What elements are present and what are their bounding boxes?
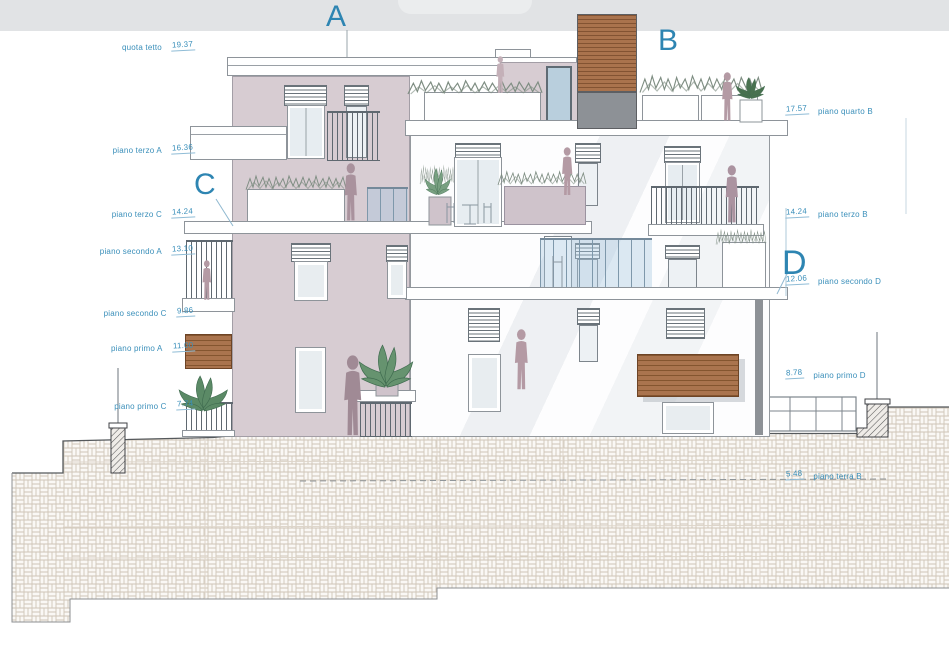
louver-window <box>577 308 600 325</box>
chimney-base <box>577 92 637 129</box>
window <box>388 262 406 298</box>
dim-label-quarto-b: 17.57 piano quarto B <box>785 107 873 118</box>
louver-window <box>284 85 327 106</box>
wood-slat-balcony-panel <box>637 354 739 397</box>
right-fence <box>767 397 856 431</box>
window <box>579 325 598 362</box>
dim-label-quota-tetto: quota tetto 19.37 <box>122 43 195 54</box>
dim-value: 16.36 <box>171 142 196 154</box>
louver-window <box>291 243 331 262</box>
louver-window <box>665 245 700 259</box>
window <box>668 259 697 290</box>
dim-name: piano primo D <box>813 371 865 380</box>
louver-window <box>344 85 369 106</box>
dim-name: piano secondo A <box>100 247 162 256</box>
window <box>288 106 324 158</box>
terrace-planter-right1 <box>642 95 699 122</box>
dim-label-secondo-c: piano secondo C 9.86 <box>104 309 195 320</box>
planter-slab-center <box>356 390 416 402</box>
section-letter-b: B <box>658 26 678 56</box>
dim-value: 7.74 <box>175 399 195 411</box>
balcony-base-left <box>182 430 235 437</box>
corner-pillar <box>755 300 763 435</box>
dim-value: 12.06 <box>785 273 810 285</box>
roof-parapet <box>495 49 531 58</box>
terrace-planter-c <box>247 189 345 222</box>
french-door <box>455 158 501 226</box>
dim-name: piano primo A <box>111 344 163 353</box>
dim-label-secondo-a: piano secondo A 13.10 <box>100 247 195 258</box>
planter-mauve <box>504 186 586 225</box>
bay-box-a <box>190 126 287 160</box>
dim-name: piano secondo D <box>818 277 881 286</box>
railing-center-low <box>360 402 412 437</box>
dim-name: piano terra B <box>813 472 861 481</box>
dim-label-primo-d: 8.78 piano primo D <box>785 371 866 382</box>
balcony-slab-b <box>648 224 764 236</box>
louver-window <box>666 308 705 339</box>
dim-value: 19.37 <box>171 39 196 51</box>
dim-name: piano secondo C <box>104 309 167 318</box>
dim-label-secondo-d: 12.06 piano secondo D <box>785 277 881 288</box>
dim-label-terzo-c: piano terzo C 14.24 <box>112 210 195 221</box>
terrace-planter-left <box>424 92 541 122</box>
right-gate-pillar <box>857 403 888 437</box>
window <box>663 403 713 433</box>
glass-railing-c <box>367 187 408 222</box>
section-letter-a: A <box>326 2 346 32</box>
terrace-planter-right2 <box>701 95 758 122</box>
dim-value: 14.24 <box>785 206 810 218</box>
dim-name: piano terzo A <box>113 146 162 155</box>
dim-value: 8.78 <box>785 368 805 380</box>
dim-label-terzo-a: piano terzo A 16.36 <box>113 146 195 157</box>
dim-label-terra-b: 5.48 piano terra B <box>785 472 862 483</box>
planter-right-low <box>722 242 766 288</box>
penthouse-glass-door <box>546 66 572 122</box>
section-letter-c: C <box>194 170 216 200</box>
french-door-transom <box>455 143 501 158</box>
dim-name: piano terzo B <box>818 210 868 219</box>
dim-name: piano primo C <box>114 402 166 411</box>
balcony-railing-b <box>651 186 759 226</box>
louver-window <box>664 146 701 163</box>
dim-label-primo-a: piano primo A 11.00 <box>111 344 195 355</box>
louver-window <box>575 143 601 163</box>
dim-value: 17.57 <box>785 103 810 115</box>
left-gate-pillar <box>111 427 125 473</box>
dim-name: piano quarto B <box>818 107 873 116</box>
dim-value: 5.48 <box>785 469 805 481</box>
dim-name: piano terzo C <box>112 210 162 219</box>
chimney <box>577 14 637 92</box>
dim-name: quota tetto <box>122 43 162 52</box>
dim-value: 9.86 <box>175 306 195 318</box>
dim-value: 13.10 <box>171 243 196 255</box>
dim-value: 14.24 <box>171 206 196 218</box>
balcony-railing-a <box>327 111 380 161</box>
dim-value: 11.00 <box>171 340 195 352</box>
glass-balustrade-d <box>540 238 652 290</box>
window <box>469 355 500 411</box>
elevation-drawing: A B C D quota tetto 19.37 piano terzo A … <box>0 0 949 649</box>
piano-secondo-d-slab <box>405 287 788 300</box>
dim-label-terzo-b: 14.24 piano terzo B <box>785 210 868 221</box>
louver-window <box>468 308 500 342</box>
window <box>296 348 325 412</box>
dim-label-primo-c: piano primo C 7.74 <box>114 402 195 413</box>
louver-window <box>386 245 408 262</box>
window <box>295 262 327 300</box>
